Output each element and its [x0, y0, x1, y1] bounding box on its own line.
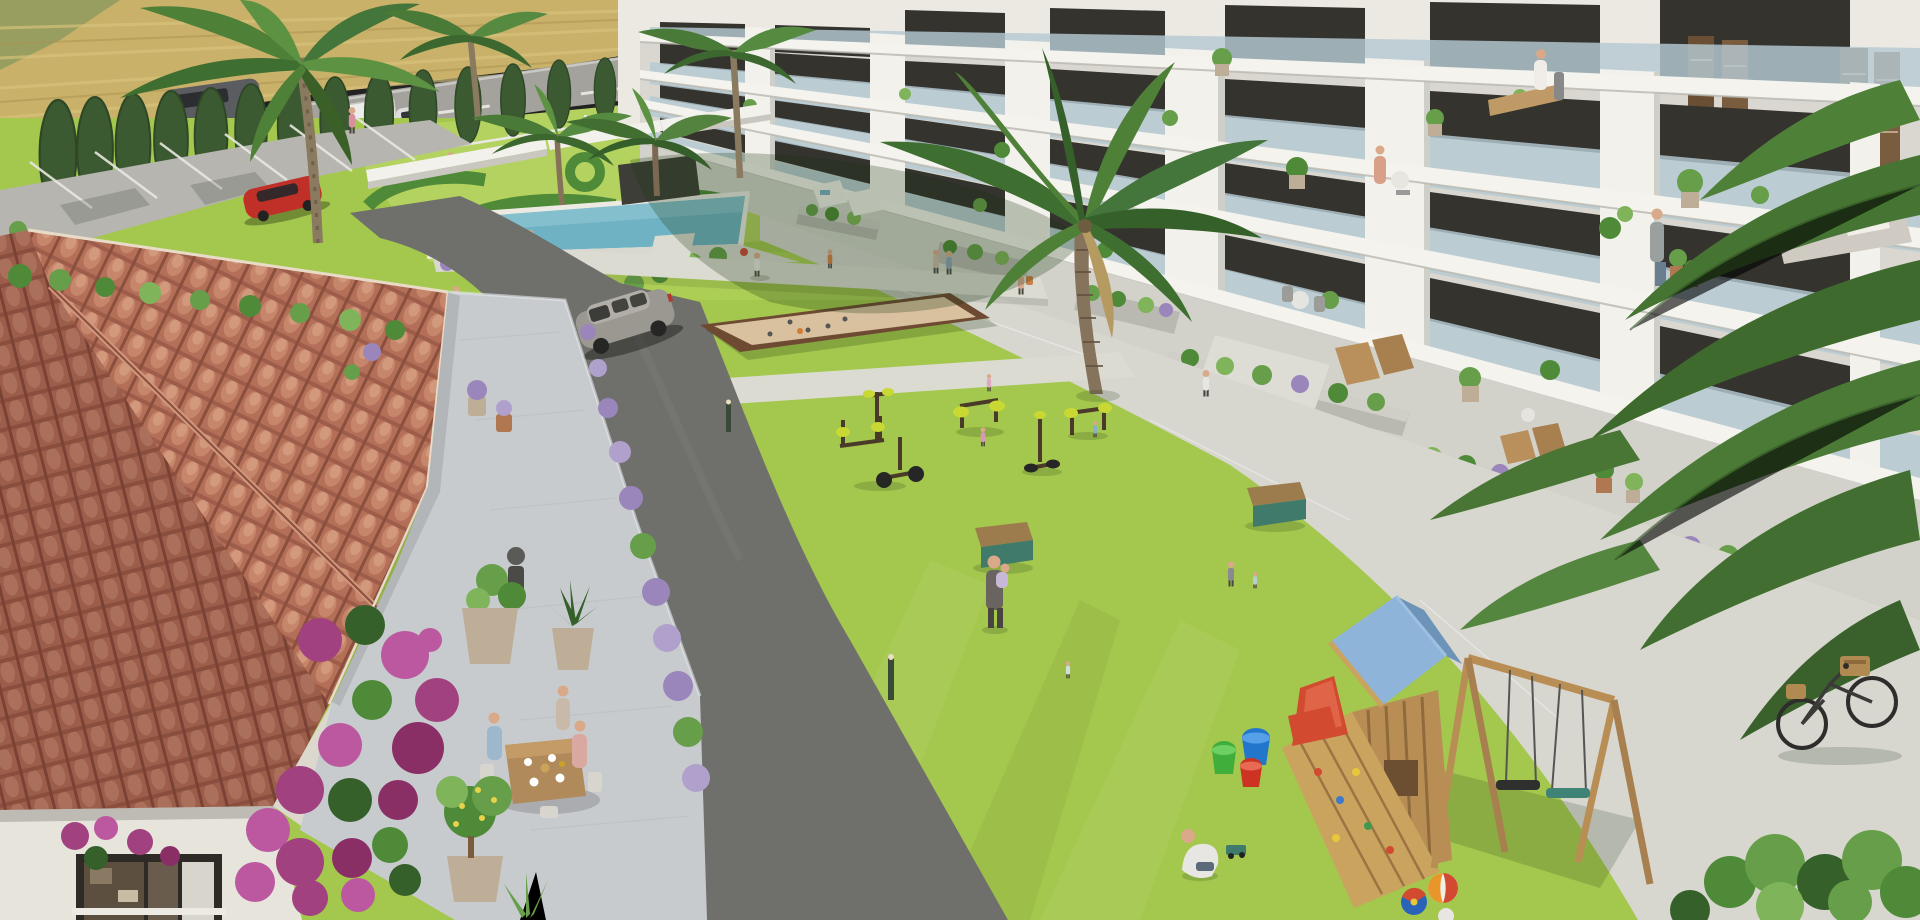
rendered-scene: Aerial 3D rendering of a Mediterranean r…	[0, 0, 1920, 920]
